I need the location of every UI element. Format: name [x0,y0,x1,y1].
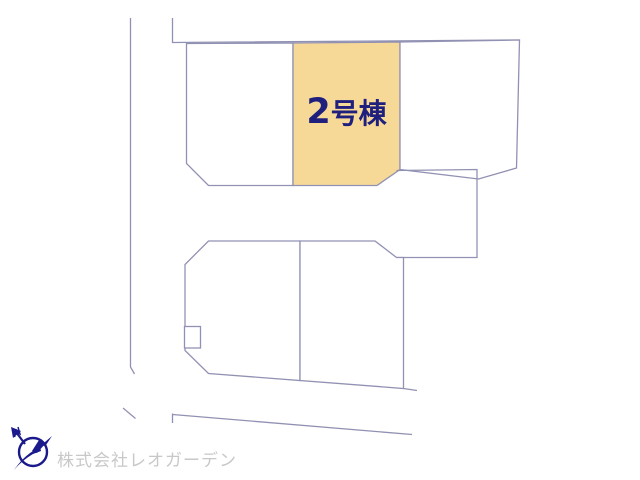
road-line-west [131,18,135,374]
boundary-line-southeast [404,389,418,391]
site-plan-canvas [0,0,640,480]
plot-bottom-center [300,241,404,389]
compass-logo-icon [11,427,52,470]
highlighted-plot-label: 2号棟 [293,93,400,137]
plot-bottom-left-notch [185,327,201,349]
site-plan: 2号棟 株式会社レオガーデン [0,0,640,480]
company-watermark: 株式会社レオガーデン [57,446,237,471]
plot-top-right [400,40,520,179]
plot-top-left [187,43,294,186]
boundary-line-north [173,18,521,43]
highlighted-plot-number: 2 [306,92,330,132]
highlighted-plot-suffix: 号棟 [331,97,387,130]
plot-middle-right [395,170,478,258]
road-line-west-end-tick [123,408,136,419]
plot-bottom-left [185,241,300,381]
road-line-south [173,415,413,435]
